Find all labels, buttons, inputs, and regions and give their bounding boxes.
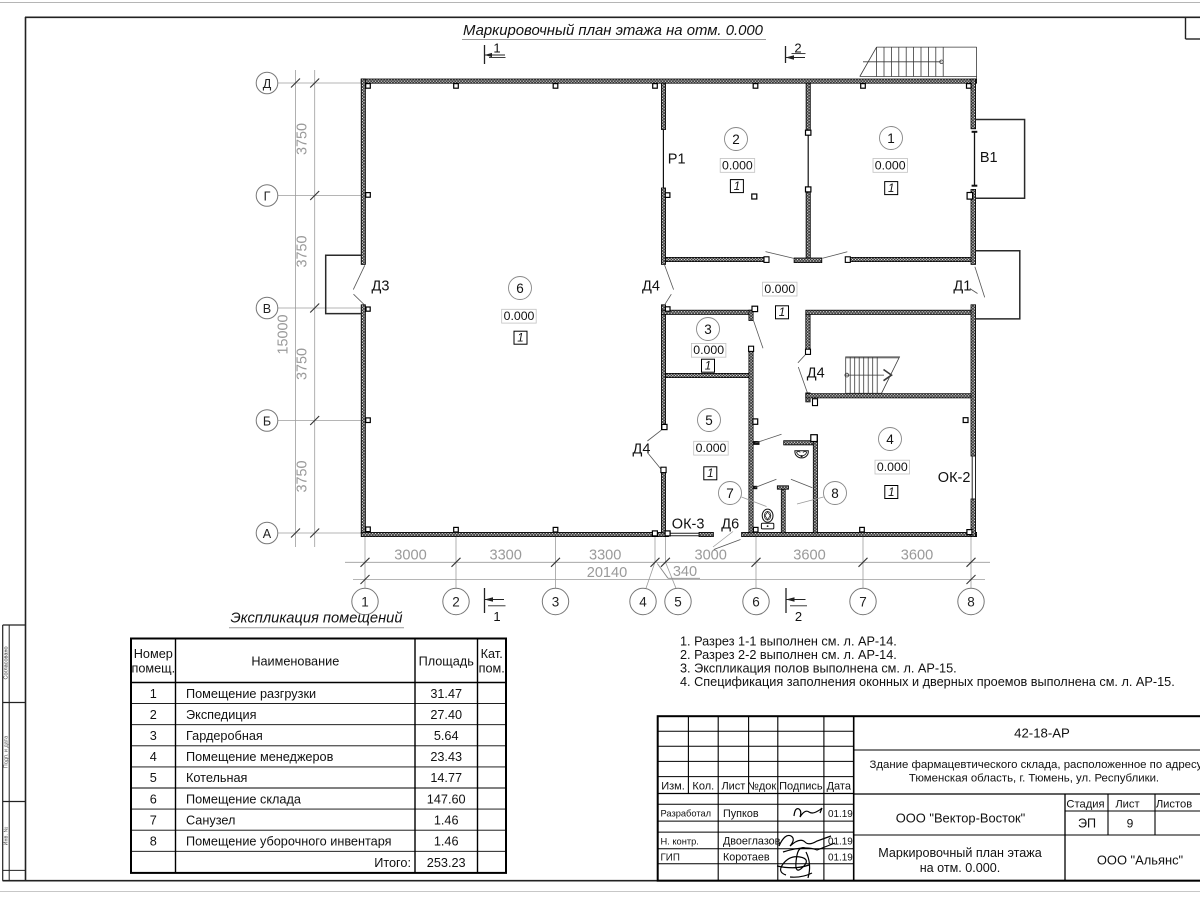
svg-text:Экспликация помещений: Экспликация помещений bbox=[230, 611, 402, 627]
svg-text:3300: 3300 bbox=[589, 548, 621, 564]
svg-text:Стадия: Стадия bbox=[1066, 798, 1104, 810]
svg-text:6: 6 bbox=[752, 595, 760, 610]
svg-text:01.19: 01.19 bbox=[828, 837, 853, 848]
svg-text:помещ.: помещ. bbox=[131, 662, 175, 676]
svg-text:1: 1 bbox=[705, 361, 711, 373]
svg-text:Листов: Листов bbox=[1156, 798, 1192, 810]
svg-text:3750: 3750 bbox=[295, 123, 311, 155]
svg-text:340: 340 bbox=[673, 564, 697, 580]
svg-text:Итого:: Итого: bbox=[374, 856, 411, 870]
svg-text:147.60: 147.60 bbox=[427, 792, 466, 806]
svg-text:Гардеробная: Гардеробная bbox=[186, 729, 263, 743]
svg-text:1: 1 bbox=[779, 307, 785, 319]
svg-text:1. Разрез 1-1 выполнен см. л.: 1. Разрез 1-1 выполнен см. л. АР-14. bbox=[680, 635, 897, 649]
svg-text:01.19: 01.19 bbox=[828, 853, 853, 864]
svg-text:Помещение менеджеров: Помещение менеджеров bbox=[186, 750, 334, 764]
svg-text:3: 3 bbox=[552, 595, 560, 610]
svg-text:9: 9 bbox=[1127, 816, 1134, 830]
svg-text:Д1: Д1 bbox=[953, 279, 971, 295]
svg-text:ООО "Вектор-Восток": ООО "Вектор-Восток" bbox=[896, 810, 1026, 825]
svg-text:27.40: 27.40 bbox=[430, 708, 462, 722]
svg-text:0.000: 0.000 bbox=[877, 460, 908, 474]
svg-text:8: 8 bbox=[831, 486, 839, 501]
svg-text:2: 2 bbox=[795, 609, 802, 624]
svg-text:ЭП: ЭП bbox=[1078, 816, 1096, 830]
svg-text:Кат.: Кат. bbox=[481, 647, 503, 661]
svg-text:В1: В1 bbox=[980, 150, 998, 166]
svg-text:Пупков: Пупков bbox=[723, 808, 759, 820]
svg-text:Д: Д bbox=[263, 77, 272, 91]
svg-text:Д6: Д6 bbox=[721, 517, 739, 533]
svg-text:0.000: 0.000 bbox=[875, 158, 906, 172]
svg-text:В: В bbox=[263, 302, 271, 316]
svg-text:2: 2 bbox=[732, 132, 740, 147]
svg-text:Помещение разгрузки: Помещение разгрузки bbox=[186, 687, 316, 701]
svg-text:1.46: 1.46 bbox=[434, 835, 459, 849]
svg-text:№док.: №док. bbox=[747, 781, 779, 793]
svg-text:3750: 3750 bbox=[295, 235, 311, 267]
svg-text:42-18-АР: 42-18-АР bbox=[1014, 726, 1070, 741]
svg-text:01.19: 01.19 bbox=[828, 809, 853, 820]
svg-text:5: 5 bbox=[674, 595, 682, 610]
svg-text:31.47: 31.47 bbox=[430, 687, 462, 701]
svg-text:Лист: Лист bbox=[721, 781, 745, 793]
svg-text:3300: 3300 bbox=[489, 548, 521, 564]
svg-text:Разработал: Разработал bbox=[661, 808, 712, 818]
svg-text:Наименование: Наименование bbox=[251, 655, 339, 669]
svg-text:Двоеглазов: Двоеглазов bbox=[723, 836, 781, 848]
svg-text:1: 1 bbox=[493, 41, 500, 56]
svg-text:1: 1 bbox=[361, 595, 369, 610]
svg-text:Коротаев: Коротаев bbox=[723, 852, 770, 864]
svg-text:Р1: Р1 bbox=[668, 151, 686, 167]
svg-text:ГИП: ГИП bbox=[661, 852, 680, 863]
svg-text:Маркировочный план этажа: Маркировочный план этажа bbox=[878, 846, 1041, 860]
svg-text:Д4: Д4 bbox=[807, 366, 825, 382]
svg-text:Подпись: Подпись bbox=[779, 781, 823, 793]
svg-text:0.000: 0.000 bbox=[722, 158, 753, 172]
svg-text:1: 1 bbox=[887, 131, 895, 146]
svg-text:Д4: Д4 bbox=[633, 441, 651, 457]
svg-text:Котельная: Котельная bbox=[186, 771, 247, 785]
svg-text:7: 7 bbox=[726, 486, 734, 501]
svg-text:3750: 3750 bbox=[295, 460, 311, 492]
svg-text:Кол.: Кол. bbox=[692, 781, 714, 793]
svg-text:0.000: 0.000 bbox=[764, 282, 795, 296]
svg-text:4: 4 bbox=[639, 595, 647, 610]
svg-text:Помещение склада: Помещение склада bbox=[186, 792, 302, 806]
svg-text:3: 3 bbox=[704, 322, 712, 337]
svg-text:Помещение уборочного инвентаря: Помещение уборочного инвентаря bbox=[186, 835, 392, 849]
svg-text:1.46: 1.46 bbox=[434, 813, 459, 827]
svg-text:5: 5 bbox=[705, 413, 713, 428]
svg-text:1: 1 bbox=[517, 333, 523, 345]
svg-text:Здание фармацевтического склад: Здание фармацевтического склада, располо… bbox=[869, 759, 1200, 771]
svg-text:3600: 3600 bbox=[793, 548, 825, 564]
svg-text:3000: 3000 bbox=[694, 548, 726, 564]
svg-text:8: 8 bbox=[150, 835, 157, 849]
svg-text:15000: 15000 bbox=[276, 314, 292, 354]
svg-text:Подп. и дата: Подп. и дата bbox=[4, 735, 10, 768]
svg-text:3750: 3750 bbox=[295, 348, 311, 380]
svg-text:7: 7 bbox=[859, 595, 867, 610]
svg-text:253.23: 253.23 bbox=[427, 856, 466, 870]
svg-text:0.000: 0.000 bbox=[693, 343, 724, 357]
svg-text:4. Спецификация заполнения око: 4. Спецификация заполнения оконных и две… bbox=[680, 675, 1175, 689]
svg-text:Санузел: Санузел bbox=[186, 813, 235, 827]
svg-text:Н. контр.: Н. контр. bbox=[661, 836, 699, 846]
svg-text:Изм.: Изм. bbox=[661, 781, 685, 793]
svg-text:Лист: Лист bbox=[1115, 798, 1139, 810]
svg-text:на отм. 0.000.: на отм. 0.000. bbox=[920, 861, 1001, 875]
svg-text:4: 4 bbox=[150, 750, 157, 764]
svg-text:2. Разрез 2-2 выполнен см. л.: 2. Разрез 2-2 выполнен см. л. АР-14. bbox=[680, 648, 897, 662]
svg-text:Дата: Дата bbox=[827, 781, 852, 793]
svg-text:ООО "Альянс": ООО "Альянс" bbox=[1097, 852, 1184, 867]
svg-text:1: 1 bbox=[888, 487, 894, 499]
svg-text:Маркировочный план этажа на от: Маркировочный план этажа на отм. 0.000 bbox=[463, 23, 764, 39]
svg-text:ОК-3: ОК-3 bbox=[672, 517, 705, 533]
svg-text:Д4: Д4 bbox=[642, 278, 660, 294]
svg-text:7: 7 bbox=[150, 813, 157, 827]
svg-text:3. Экспликация полов выполнена: 3. Экспликация полов выполнена см. л. АР… bbox=[680, 662, 957, 676]
svg-text:1: 1 bbox=[150, 687, 157, 701]
svg-text:3600: 3600 bbox=[901, 548, 933, 564]
svg-text:Согласовано: Согласовано bbox=[4, 646, 10, 679]
svg-text:23.43: 23.43 bbox=[430, 750, 462, 764]
svg-text:Инв. №: Инв. № bbox=[4, 826, 10, 845]
svg-text:Д3: Д3 bbox=[372, 278, 390, 294]
svg-text:3: 3 bbox=[150, 729, 157, 743]
svg-text:пом.: пом. bbox=[479, 662, 505, 676]
svg-text:Г: Г bbox=[264, 190, 271, 204]
svg-text:6: 6 bbox=[150, 792, 157, 806]
svg-text:5.64: 5.64 bbox=[434, 729, 459, 743]
svg-text:2: 2 bbox=[452, 595, 460, 610]
svg-text:1: 1 bbox=[734, 181, 740, 193]
svg-text:Номер: Номер bbox=[134, 647, 173, 661]
svg-text:Экспедиция: Экспедиция bbox=[186, 708, 257, 722]
svg-text:Площадь: Площадь bbox=[419, 655, 475, 669]
svg-text:5: 5 bbox=[150, 771, 157, 785]
svg-text:А: А bbox=[263, 527, 272, 541]
svg-text:1: 1 bbox=[888, 183, 894, 195]
svg-text:Тюменская область, г. Тюмень,: Тюменская область, г. Тюмень, ул. Респуб… bbox=[909, 772, 1159, 784]
svg-text:4: 4 bbox=[886, 432, 894, 447]
svg-text:6: 6 bbox=[516, 281, 524, 296]
svg-text:2: 2 bbox=[150, 708, 157, 722]
svg-text:0.000: 0.000 bbox=[696, 441, 727, 455]
svg-text:0.000: 0.000 bbox=[504, 309, 535, 323]
svg-text:1: 1 bbox=[707, 468, 713, 480]
svg-text:20140: 20140 bbox=[587, 565, 628, 581]
svg-text:3000: 3000 bbox=[394, 548, 426, 564]
svg-text:14.77: 14.77 bbox=[430, 771, 462, 785]
svg-text:1: 1 bbox=[493, 609, 500, 624]
svg-text:ОК-2: ОК-2 bbox=[938, 470, 971, 486]
svg-text:Б: Б bbox=[263, 415, 271, 429]
svg-text:8: 8 bbox=[967, 595, 975, 610]
